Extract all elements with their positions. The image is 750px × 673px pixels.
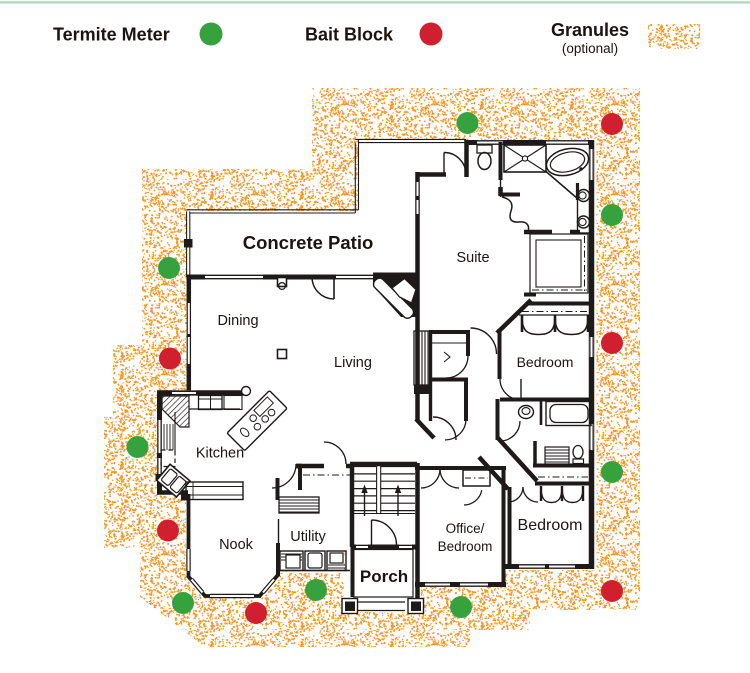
- svg-text:Porch: Porch: [360, 567, 408, 586]
- svg-text:Termite Meter: Termite Meter: [53, 25, 170, 45]
- svg-text:Living: Living: [334, 355, 372, 371]
- svg-text:Bedroom: Bedroom: [438, 539, 493, 554]
- svg-text:Granules: Granules: [551, 20, 629, 40]
- svg-text:Bedroom: Bedroom: [518, 517, 583, 534]
- svg-text:Dining: Dining: [217, 313, 258, 329]
- svg-text:Nook: Nook: [219, 537, 254, 553]
- svg-text:Kitchen: Kitchen: [196, 446, 244, 462]
- svg-text:Concrete Patio: Concrete Patio: [243, 232, 374, 253]
- svg-text:(optional): (optional): [562, 41, 618, 56]
- svg-text:Office/: Office/: [446, 521, 485, 536]
- svg-text:Utility: Utility: [290, 529, 326, 545]
- svg-text:Bait Block: Bait Block: [305, 25, 394, 45]
- svg-text:Suite: Suite: [456, 250, 489, 266]
- svg-text:Bedroom: Bedroom: [517, 354, 574, 370]
